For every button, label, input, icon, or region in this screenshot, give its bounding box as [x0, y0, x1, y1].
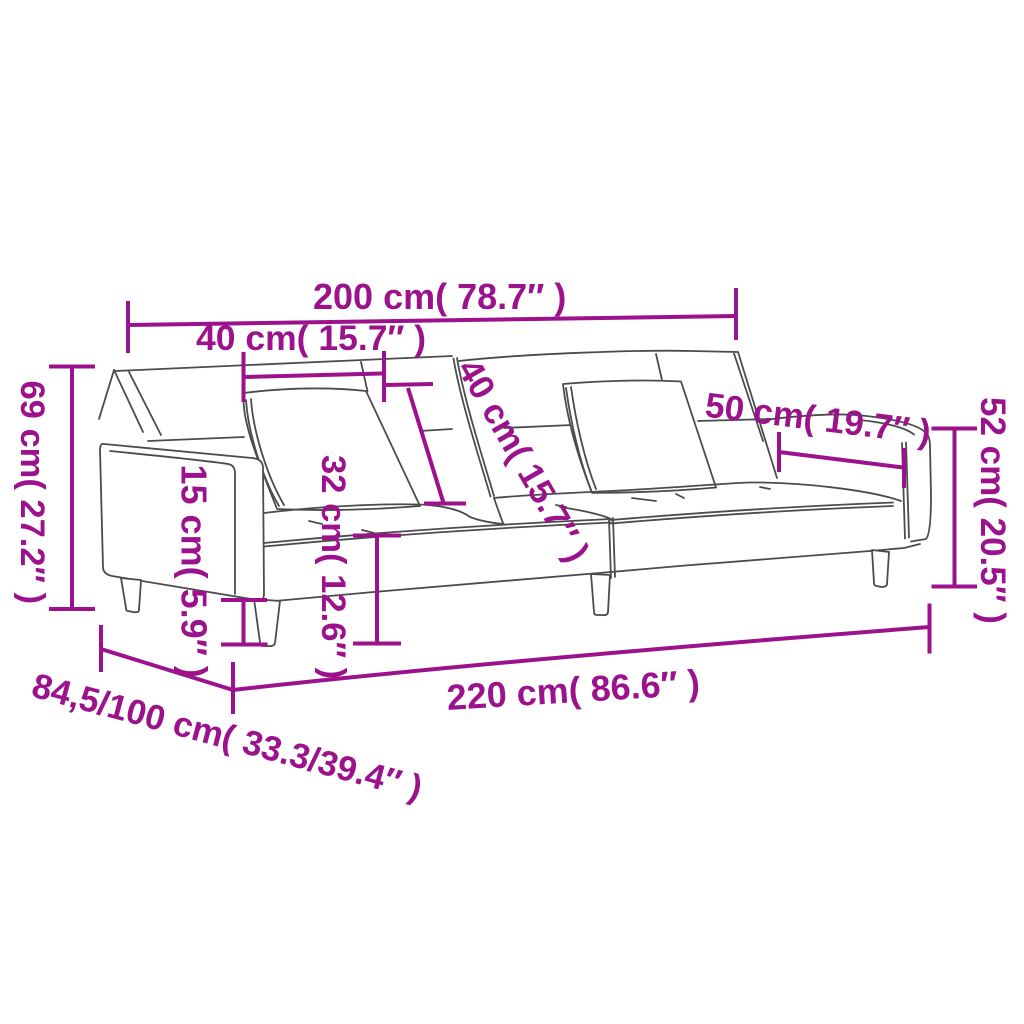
svg-text:40 cm( 15.7″ ): 40 cm( 15.7″ ) — [196, 318, 426, 358]
svg-text:200 cm( 78.7″ ): 200 cm( 78.7″ ) — [313, 276, 566, 317]
svg-text:32 cm( 12.6″ ): 32 cm( 12.6″ ) — [314, 455, 352, 679]
svg-text:52 cm( 20.5″ ): 52 cm( 20.5″ ) — [973, 397, 1012, 624]
svg-text:15 cm( 5.9″ ): 15 cm( 5.9″ ) — [174, 465, 215, 678]
svg-text:69 cm( 27.2″ ): 69 cm( 27.2″ ) — [13, 381, 51, 605]
